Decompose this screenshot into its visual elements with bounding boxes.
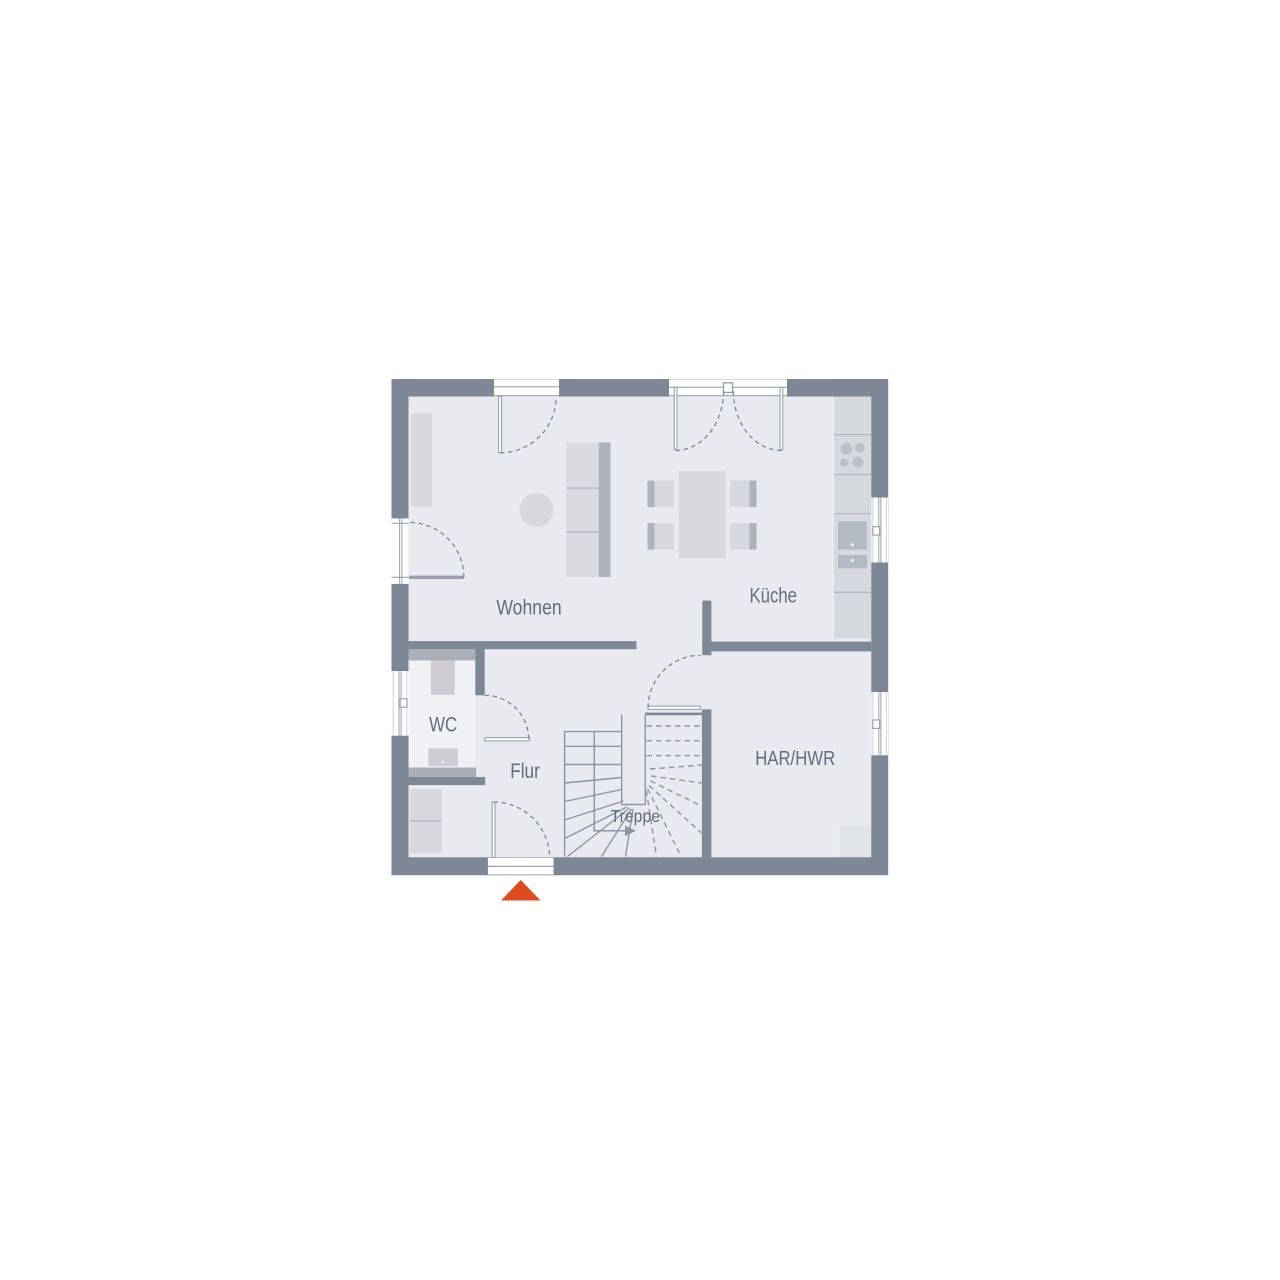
svg-text:HAR/HWR: HAR/HWR xyxy=(755,747,835,770)
svg-text:Wohnen: Wohnen xyxy=(496,596,561,620)
svg-text:WC: WC xyxy=(429,714,457,737)
svg-text:Flur: Flur xyxy=(510,759,540,783)
svg-text:Treppe: Treppe xyxy=(611,806,661,826)
svg-text:Küche: Küche xyxy=(749,584,797,607)
